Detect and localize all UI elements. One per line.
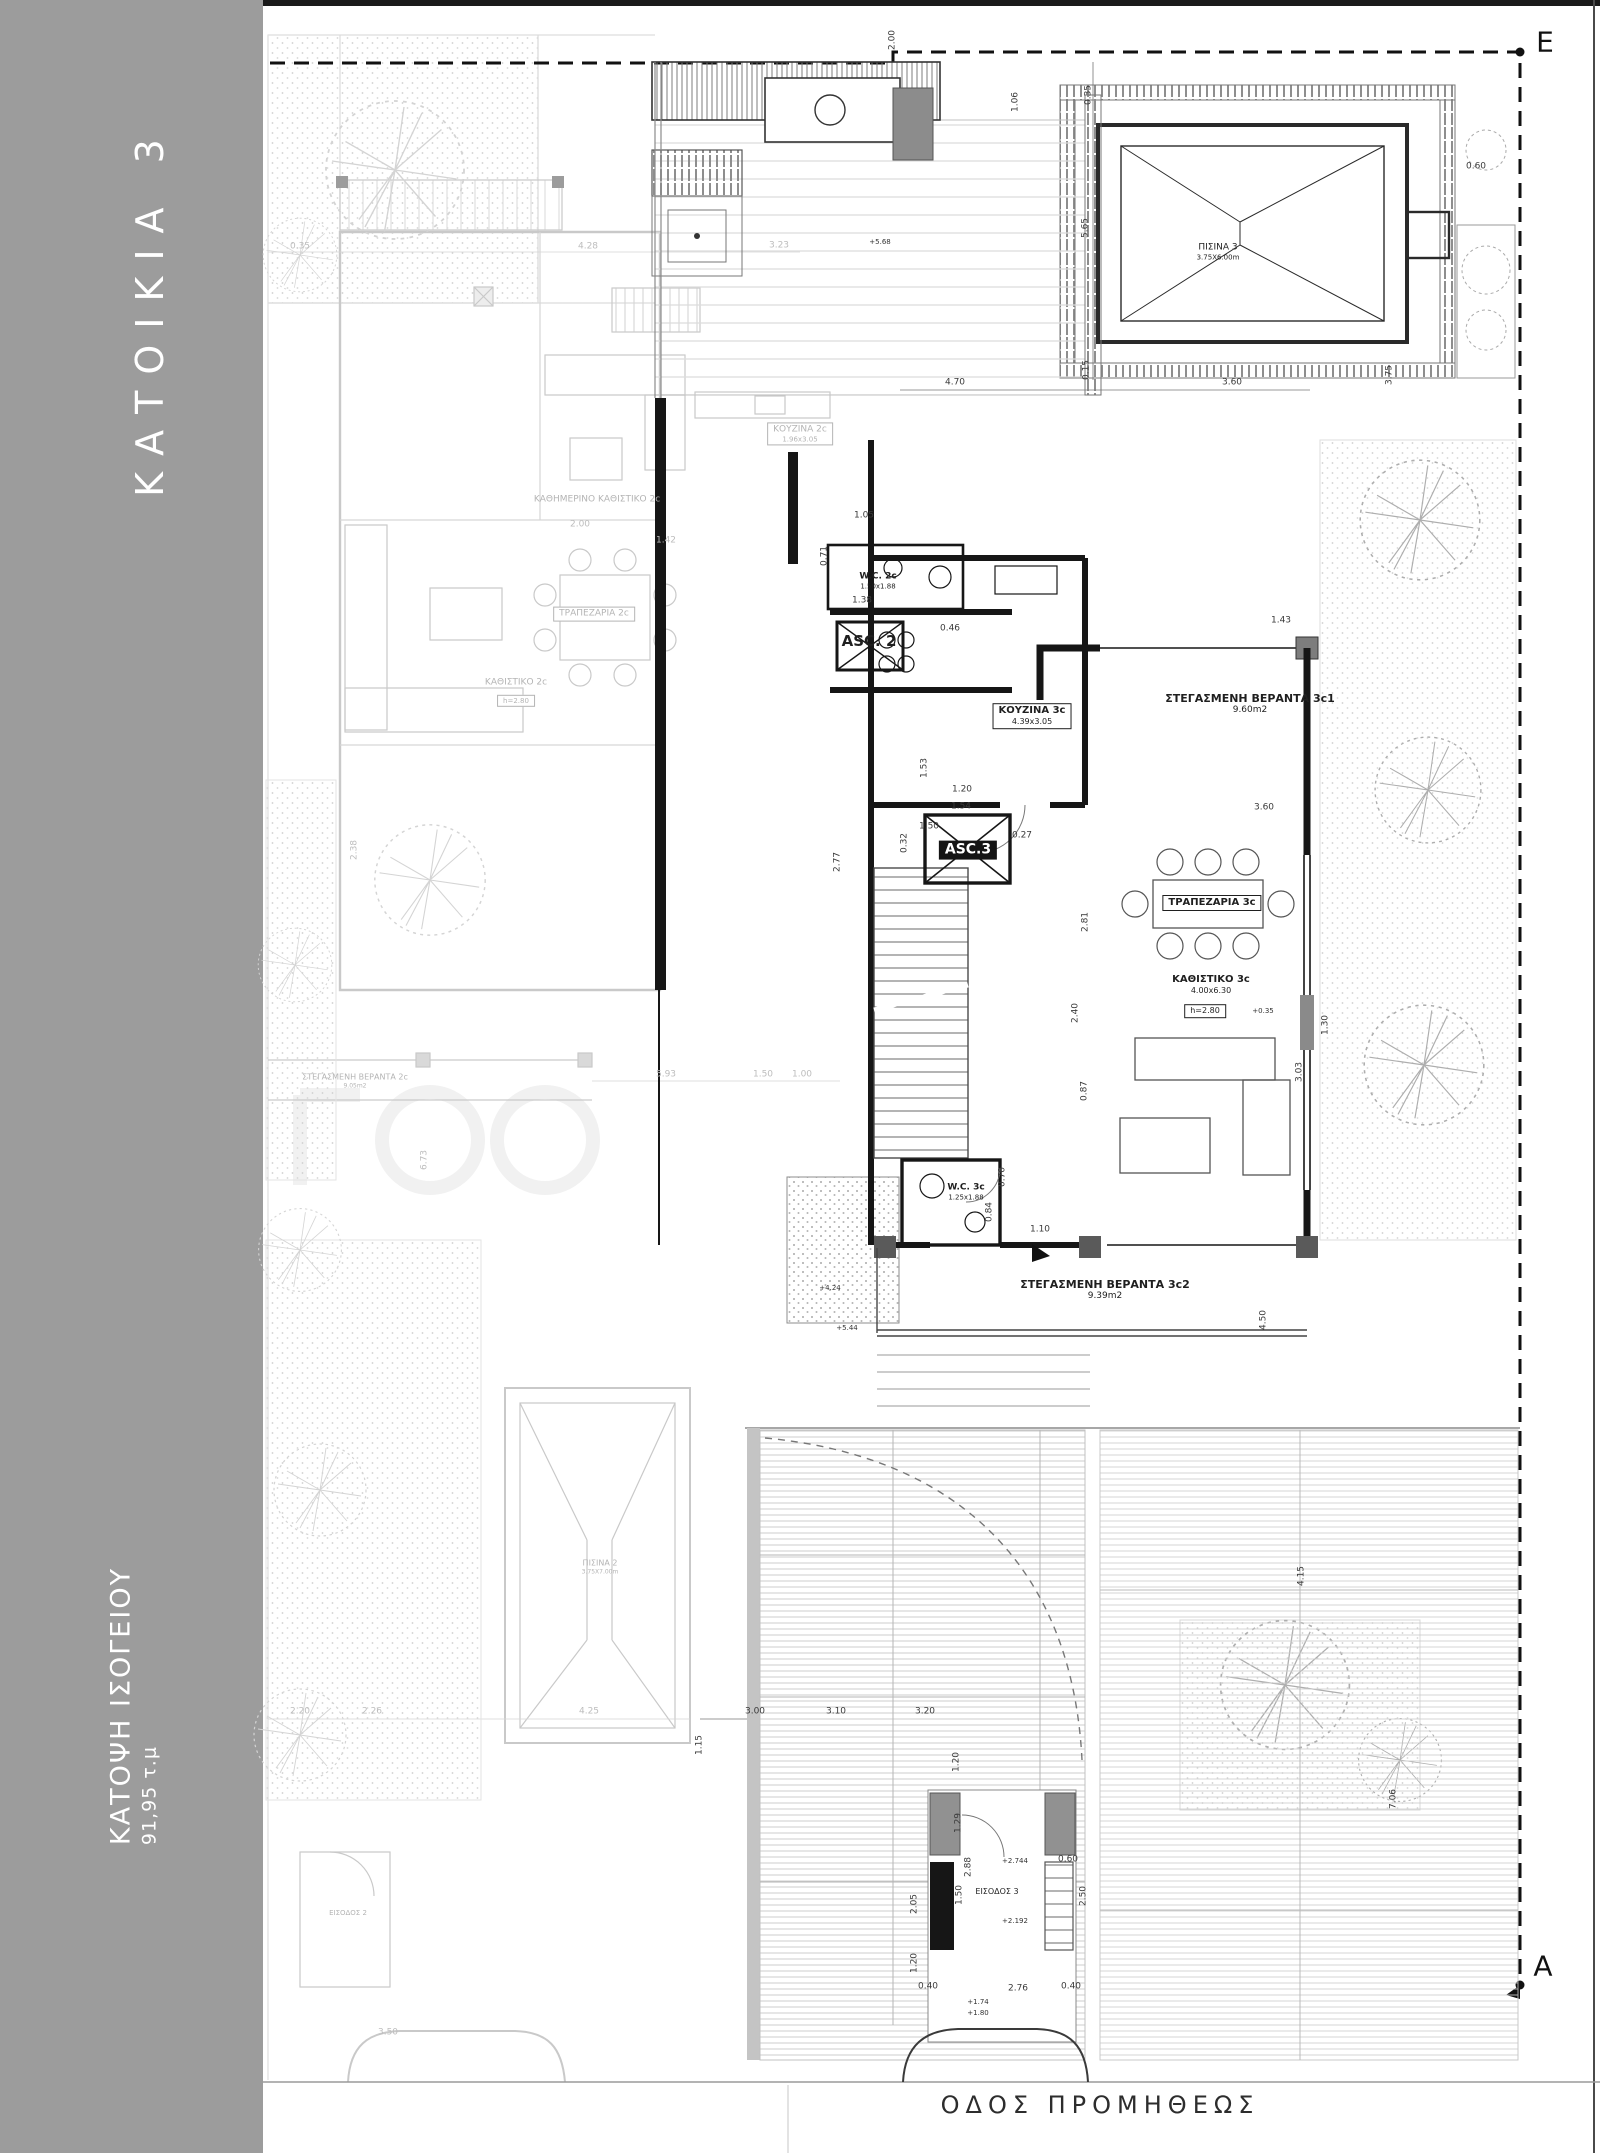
section-marker-e: E bbox=[1536, 26, 1554, 59]
pool-3 bbox=[1060, 85, 1515, 378]
entrance-3 bbox=[928, 1790, 1076, 2042]
top-terrace bbox=[652, 62, 1310, 398]
watermark bbox=[300, 1092, 593, 1188]
section-marker-a: A bbox=[1533, 1950, 1552, 1983]
driveway bbox=[747, 1428, 1518, 2060]
floor-plan-drawing bbox=[0, 0, 1600, 2153]
floor-plan-page: ΚΑΤΟΙΚΙΑ 3 ΚΑΤΟΨΗ ΙΣΟΓΕΙΟΥ 91,95 τ.μ E A… bbox=[0, 0, 1600, 2153]
street-name: ΟΔΟΣ ΠΡΟΜΗΘΕΩΣ bbox=[941, 2091, 1260, 2119]
